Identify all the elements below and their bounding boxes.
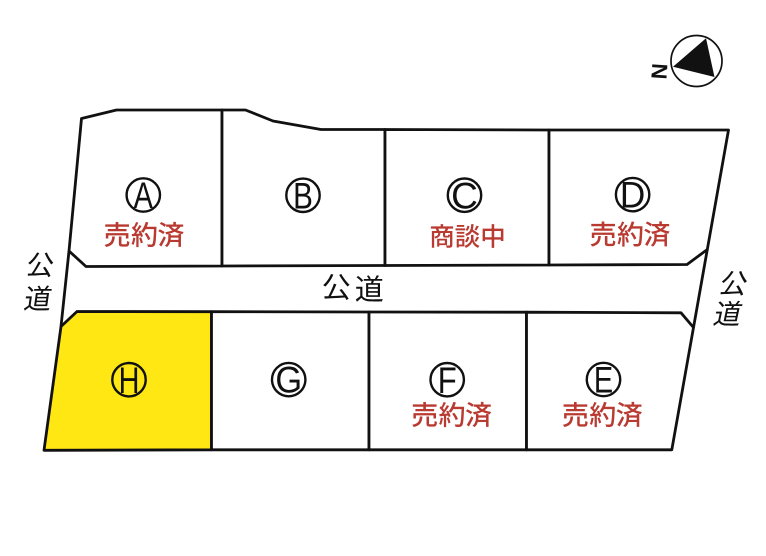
svg-text:N: N xyxy=(646,63,672,81)
svg-text:D: D xyxy=(620,174,645,216)
svg-text:H: H xyxy=(119,360,140,401)
svg-text:C: C xyxy=(451,175,478,216)
svg-text:A: A xyxy=(134,176,154,217)
svg-text:E: E xyxy=(594,360,613,401)
svg-text:F: F xyxy=(438,360,457,401)
svg-text:B: B xyxy=(293,176,313,217)
svg-text:G: G xyxy=(275,360,302,401)
